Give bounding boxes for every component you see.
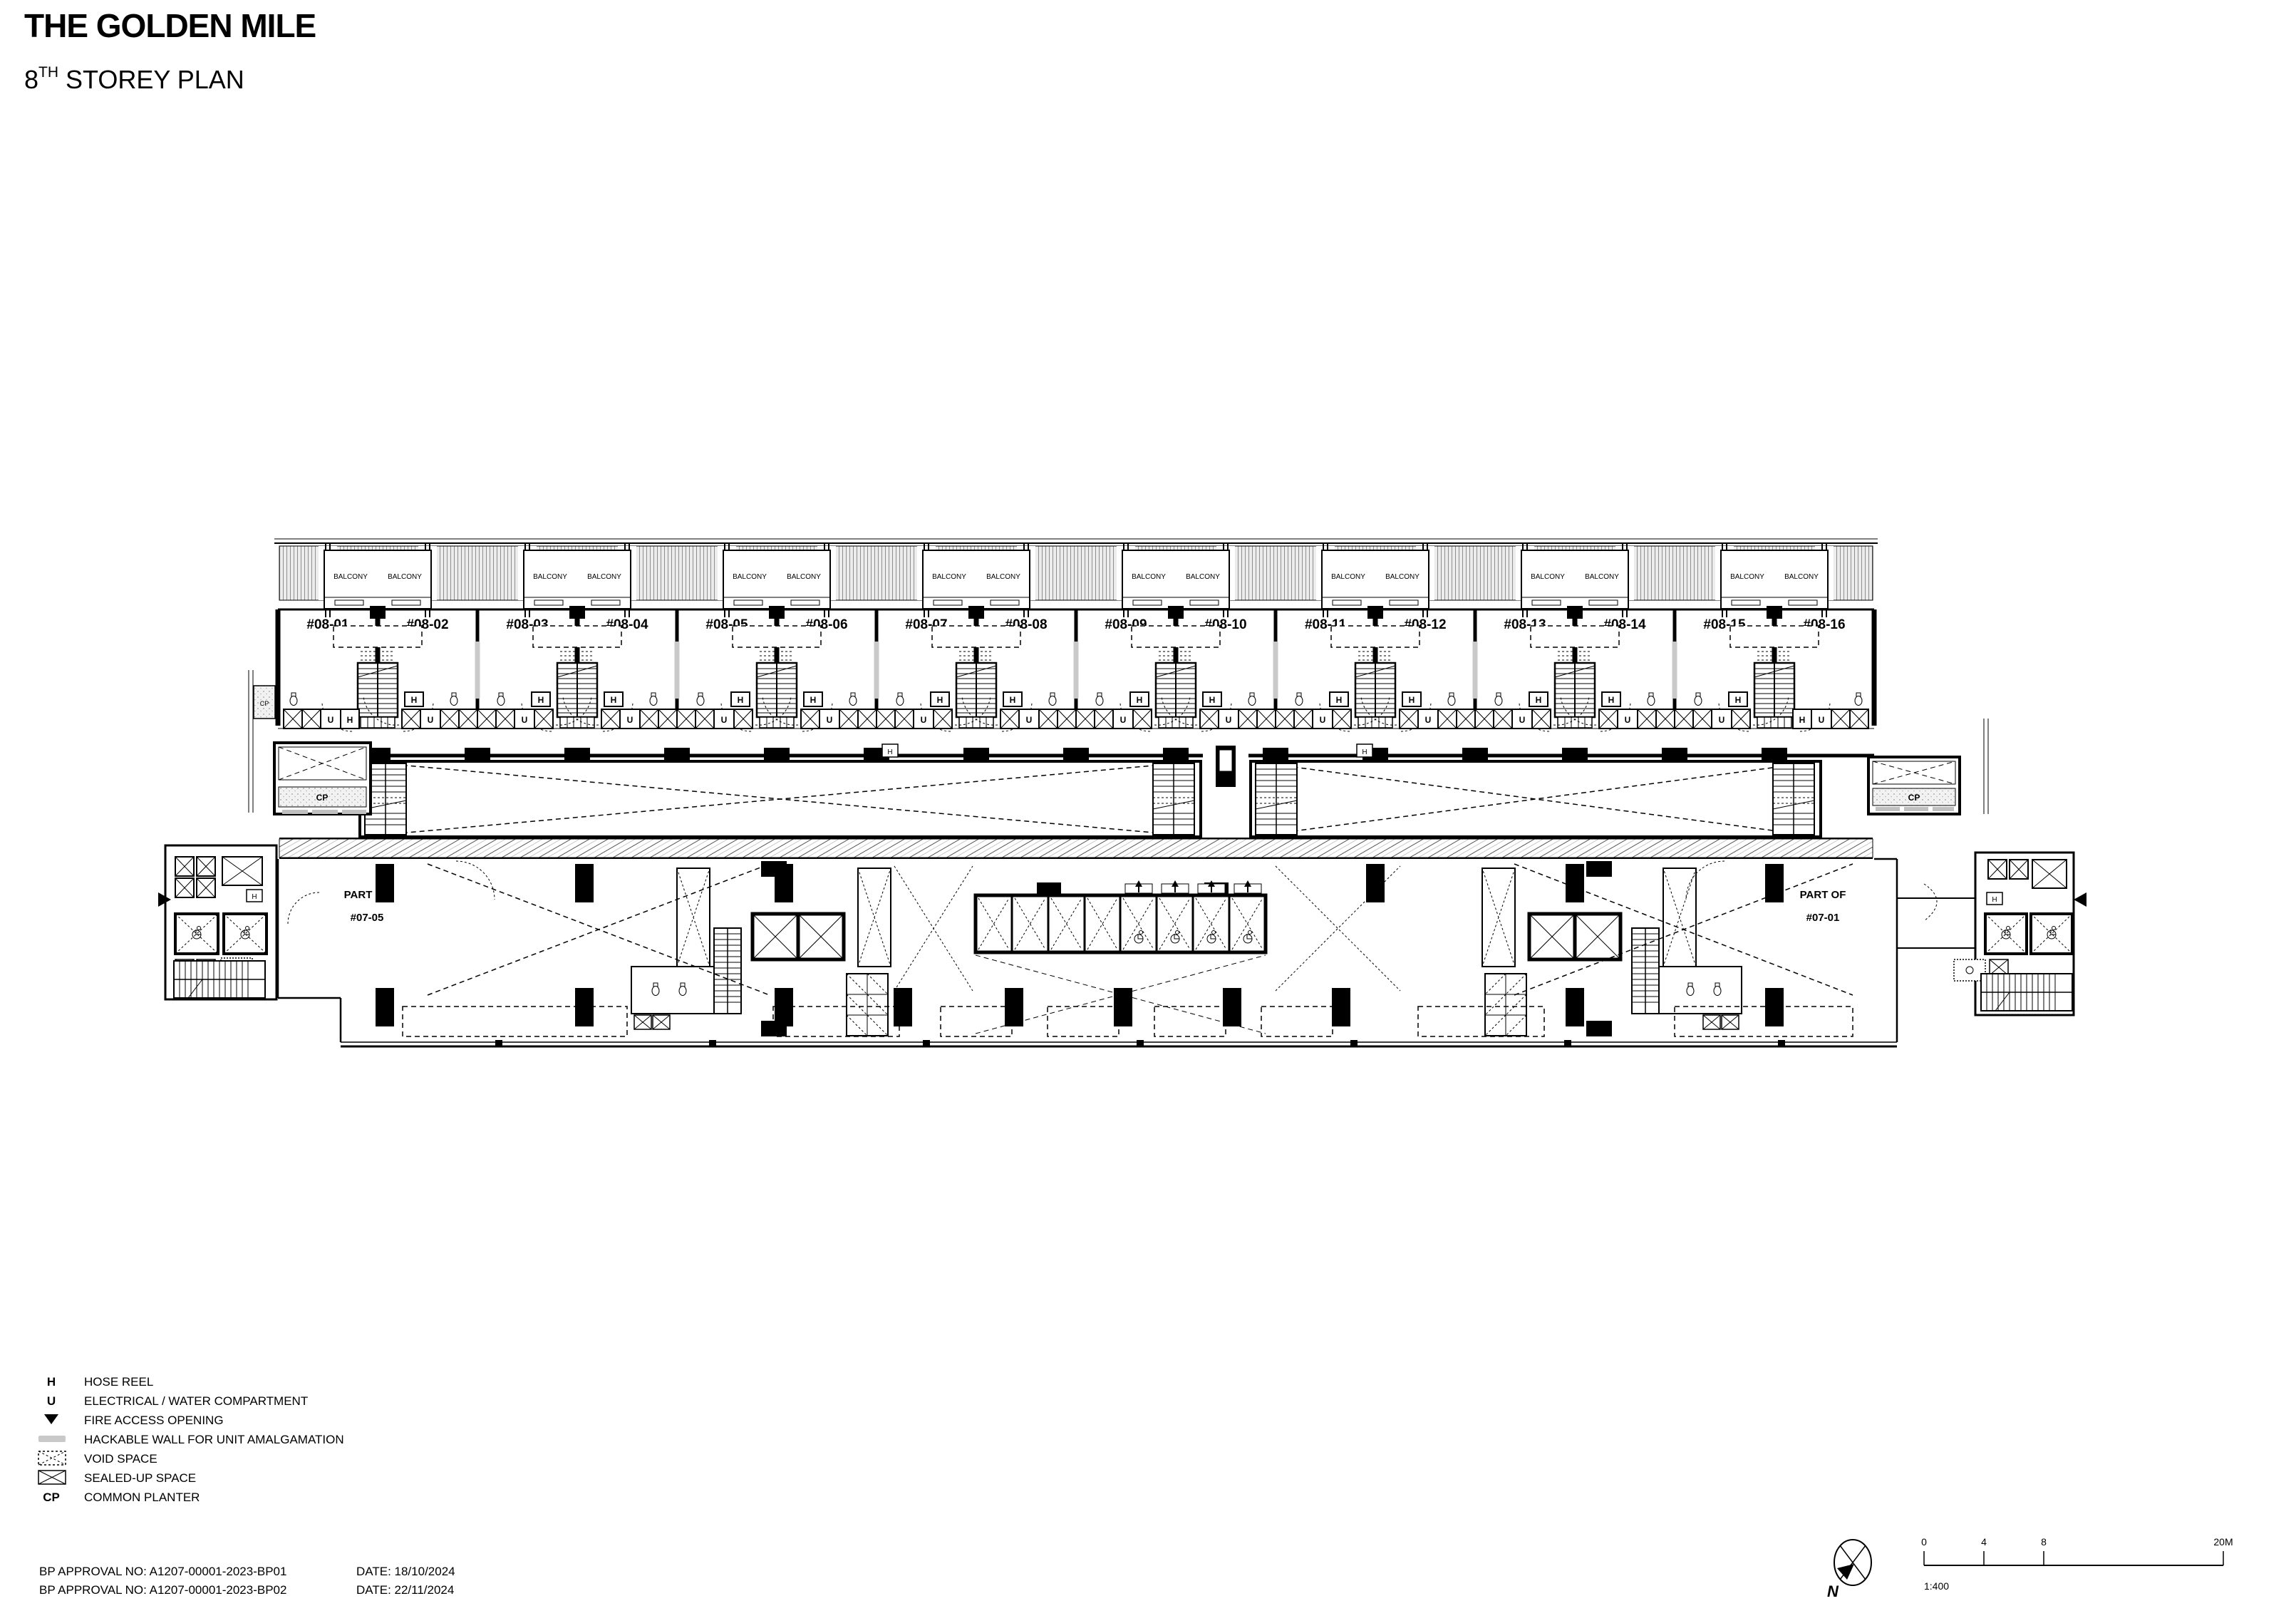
void-deck-left — [360, 761, 1201, 837]
balcony-label: BALCONY — [1186, 573, 1220, 581]
balcony-label: BALCONY — [1531, 573, 1565, 581]
lower-band: H H PART OF #07-05 — [158, 845, 2086, 1046]
right-wing: H — [1897, 853, 2086, 1015]
legend-label: SEALED-UP SPACE — [84, 1471, 196, 1485]
page-subtitle: 8TH STOREY PLAN — [24, 64, 244, 94]
curtain-wall-marks — [495, 1040, 1785, 1046]
scale-ratio: 1:400 — [1924, 1580, 1949, 1592]
middle-band: CP H H — [249, 670, 1988, 858]
legend-label: COMMON PLANTER — [84, 1491, 200, 1504]
unit-band: BALCONYBALCONY BALCONYBALCONY BALCONYBAL… — [274, 539, 1878, 731]
scale-bar: 0 4 8 20M 1:400 — [1921, 1536, 2233, 1592]
floor-plan-drawing: U U H H U H H U THE GOLDEN MILE — [0, 0, 2296, 1601]
title-block: THE GOLDEN MILE 8TH STOREY PLAN — [24, 7, 316, 94]
legend-row-fire-access: FIRE ACCESS OPENING — [44, 1414, 224, 1427]
part-of-left-line2: #07-05 — [351, 912, 384, 924]
legend-row-common-planter: CP COMMON PLANTER — [43, 1491, 200, 1504]
legend-row-sealed: SEALED-UP SPACE — [38, 1471, 196, 1485]
legend-label: FIRE ACCESS OPENING — [84, 1414, 224, 1427]
balcony-label: BALCONY — [1331, 573, 1365, 581]
legend-label: VOID SPACE — [84, 1452, 157, 1466]
bp-approval-date-2: DATE: 22/11/2024 — [356, 1583, 454, 1597]
balcony-label: BALCONY — [986, 573, 1020, 581]
legend: H HOSE REEL U ELECTRICAL / WATER COMPART… — [38, 1375, 344, 1504]
balcony-label: BALCONY — [1385, 573, 1420, 581]
page-title: THE GOLDEN MILE — [24, 7, 316, 44]
common-planter-right: CP — [1868, 757, 1960, 814]
hackable-wall-icon — [38, 1436, 66, 1442]
core-cluster-left — [631, 861, 891, 1036]
north-pointer-icon — [1837, 1564, 1854, 1580]
legend-label: HACKABLE WALL FOR UNIT AMALGAMATION — [84, 1433, 344, 1446]
balcony-label: BALCONY — [388, 573, 422, 581]
part-of-right-line1: PART OF — [1800, 889, 1846, 901]
balcony-label: BALCONY — [533, 573, 567, 581]
balcony-label: BALCONY — [733, 573, 767, 581]
scale-tick-4: 4 — [1981, 1536, 1987, 1548]
legend-row-void: VOID SPACE — [38, 1451, 157, 1466]
hose-reel-label: H — [1362, 748, 1367, 756]
balcony-label: BALCONY — [587, 573, 621, 581]
balcony-label: BALCONY — [1730, 573, 1764, 581]
legend-row-electrical: U ELECTRICAL / WATER COMPARTMENT — [47, 1394, 308, 1408]
scale-tick-0: 0 — [1921, 1536, 1927, 1548]
legend-key: H — [47, 1375, 56, 1389]
corridor-hatch — [279, 839, 1873, 858]
drawing-sheet: U U H H U H H U THE GOLDEN MILE — [0, 0, 2296, 1601]
common-planter-left: CP — [274, 743, 371, 814]
balcony-label: BALCONY — [932, 573, 966, 581]
north-arrow: N — [1827, 1540, 1871, 1600]
hackable-wall-segments — [477, 642, 1675, 699]
part-of-right-line2: #07-01 — [1806, 912, 1840, 924]
approval-block: BP APPROVAL NO: A1207-00001-2023-BP01 DA… — [39, 1565, 455, 1597]
scale-tick-8: 8 — [2041, 1536, 2047, 1548]
legend-key: CP — [43, 1491, 60, 1504]
void-deck-right — [1251, 761, 1821, 837]
cp-label: CP — [316, 793, 329, 803]
left-wing: H — [158, 845, 276, 999]
bp-approval-date-1: DATE: 18/10/2024 — [356, 1565, 455, 1578]
hose-reel-label: H — [252, 893, 257, 901]
bp-approval-no-1: BP APPROVAL NO: A1207-00001-2023-BP01 — [39, 1565, 286, 1578]
lift-bank — [976, 880, 1266, 952]
balcony-label: BALCONY — [787, 573, 821, 581]
balcony-label: BALCONY — [1784, 573, 1819, 581]
fire-access-opening-icon — [44, 1414, 58, 1424]
legend-key: U — [47, 1394, 56, 1408]
balcony-label: BALCONY — [1585, 573, 1619, 581]
legend-row-hose-reel: H HOSE REEL — [47, 1375, 153, 1389]
scale-tick-20m: 20M — [2213, 1536, 2233, 1548]
hose-reel-label: H — [887, 748, 892, 756]
legend-label: HOSE REEL — [84, 1375, 153, 1389]
core-cluster-right — [1482, 861, 1742, 1036]
balcony-label: BALCONY — [1132, 573, 1166, 581]
balcony-label: BALCONY — [333, 573, 368, 581]
lift-call-arrows — [1125, 880, 1261, 893]
legend-row-hackable: HACKABLE WALL FOR UNIT AMALGAMATION — [38, 1433, 344, 1446]
fire-access-opening-icon — [2074, 892, 2086, 907]
hose-reel-label: H — [1992, 896, 1997, 904]
cp-label: CP — [1908, 793, 1920, 803]
bp-approval-no-2: BP APPROVAL NO: A1207-00001-2023-BP02 — [39, 1583, 286, 1597]
north-label: N — [1827, 1582, 1839, 1600]
legend-label: ELECTRICAL / WATER COMPARTMENT — [84, 1394, 308, 1408]
cp-label: CP — [260, 700, 269, 707]
